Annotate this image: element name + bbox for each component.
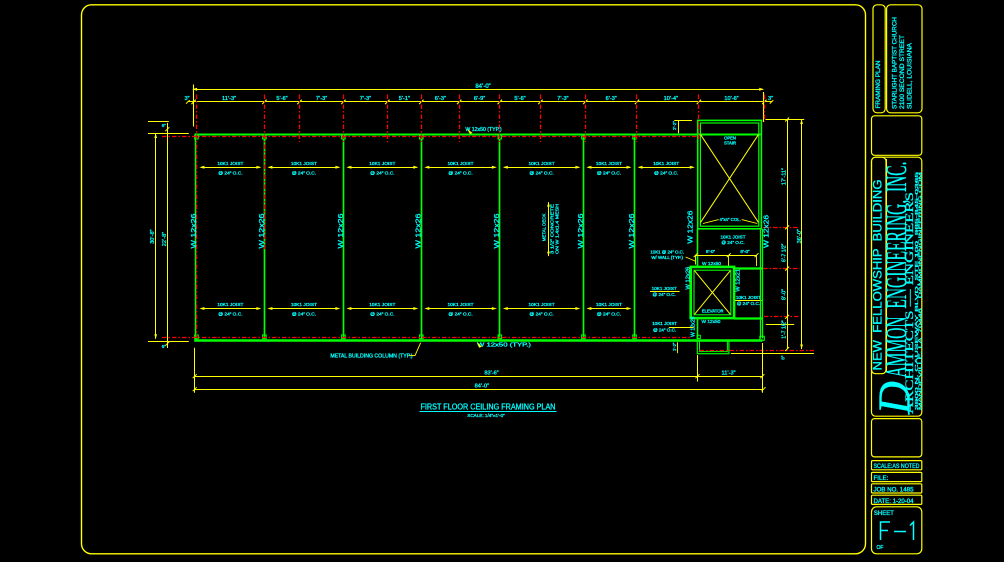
svg-text:8’-0”: 8’-0” bbox=[740, 249, 750, 254]
svg-text:3”: 3” bbox=[768, 96, 773, 102]
svg-text:7’-3”: 7’-3” bbox=[316, 96, 327, 102]
svg-text:W 12x26: W 12x26 bbox=[336, 214, 345, 249]
svg-text:OF: OF bbox=[877, 545, 884, 551]
svg-text:ON W 1.4x1.4 MESH: ON W 1.4x1.4 MESH bbox=[554, 204, 559, 254]
svg-text:W 12x50: W 12x50 bbox=[702, 319, 721, 325]
svg-text:METAL BUILDING COLUMN (TYP.): METAL BUILDING COLUMN (TYP.) bbox=[330, 354, 413, 360]
svg-text:ELEVATOR: ELEVATOR bbox=[702, 308, 724, 313]
svg-text:W 12x50 (TYP.): W 12x50 (TYP.) bbox=[477, 343, 531, 349]
svg-text:84’-0”: 84’-0” bbox=[475, 384, 489, 390]
svg-text:10K1 JOIST: 10K1 JOIST bbox=[217, 161, 243, 167]
svg-text:W 12x26: W 12x26 bbox=[576, 214, 585, 249]
svg-text:8’-0”: 8’-0” bbox=[781, 289, 787, 300]
svg-text:10’-4”: 10’-4” bbox=[664, 96, 678, 102]
svg-text:W 12x26: W 12x26 bbox=[685, 267, 691, 290]
svg-text:@ 24” O.C.: @ 24” O.C. bbox=[292, 312, 316, 318]
svg-text:10’-6”: 10’-6” bbox=[724, 96, 738, 102]
svg-text:@ 24” O.C.: @ 24” O.C. bbox=[653, 328, 676, 333]
svg-text:@ 24” O.C.: @ 24” O.C. bbox=[218, 170, 242, 176]
svg-text:10K1 @ 24” O.C.: 10K1 @ 24” O.C. bbox=[650, 250, 684, 255]
svg-text:W 12x26: W 12x26 bbox=[414, 214, 423, 249]
svg-text:10K1 JOIST: 10K1 JOIST bbox=[596, 302, 622, 308]
svg-text:36’-0”: 36’-0” bbox=[797, 229, 803, 243]
svg-text:@ 24” O.C.: @ 24” O.C. bbox=[529, 312, 553, 318]
svg-text:84’-0”: 84’-0” bbox=[475, 84, 490, 90]
svg-text:10K1 JOIST: 10K1 JOIST bbox=[369, 302, 395, 308]
svg-text:2100 SECOND STREET: 2100 SECOND STREET bbox=[899, 35, 906, 109]
svg-text:30’-8”: 30’-8” bbox=[150, 229, 156, 243]
svg-text:W 12x26: W 12x26 bbox=[691, 316, 697, 337]
svg-text:17’-11”: 17’-11” bbox=[781, 168, 787, 185]
svg-text:@ 24” O.C.: @ 24” O.C. bbox=[370, 312, 394, 318]
svg-text:FILE:: FILE: bbox=[874, 475, 889, 482]
svg-text:W 12x26: W 12x26 bbox=[686, 211, 695, 244]
svg-text:W 12x26: W 12x26 bbox=[762, 215, 771, 248]
svg-text:SCALE: 1/4”=1’-0”: SCALE: 1/4”=1’-0” bbox=[467, 413, 505, 418]
svg-text:5’-6”: 5’-6” bbox=[514, 96, 525, 102]
svg-text:STAIR: STAIR bbox=[724, 140, 736, 145]
svg-text:8’-0”: 8’-0” bbox=[706, 249, 716, 254]
svg-text:W 12x21: W 12x21 bbox=[736, 269, 742, 292]
svg-text:@ 24” O.C.: @ 24” O.C. bbox=[597, 170, 621, 176]
svg-text:11’-3”: 11’-3” bbox=[222, 96, 236, 102]
svg-text:10K1 JOIST: 10K1 JOIST bbox=[291, 302, 317, 308]
svg-text:@ 24” O.C.: @ 24” O.C. bbox=[448, 170, 472, 176]
svg-text:5’-1”: 5’-1” bbox=[399, 96, 410, 102]
svg-text:6”: 6” bbox=[162, 344, 167, 349]
svg-text:10K1 JOIST: 10K1 JOIST bbox=[596, 161, 622, 167]
svg-text:@ 24” O.C.: @ 24” O.C. bbox=[654, 170, 678, 176]
svg-text:@ 24” O.C.: @ 24” O.C. bbox=[448, 312, 472, 318]
svg-text:6”: 6” bbox=[162, 123, 167, 128]
svg-text:METAL DECK: METAL DECK bbox=[542, 214, 547, 242]
svg-text:FIRST FLOOR CEILING FRAMING PL: FIRST FLOOR CEILING FRAMING PLAN bbox=[421, 403, 556, 412]
svg-text:6’-9”: 6’-9” bbox=[474, 96, 485, 102]
svg-text:10K1 JOIST: 10K1 JOIST bbox=[736, 295, 761, 300]
svg-text:7’-3”: 7’-3” bbox=[360, 96, 371, 102]
svg-text:10K1 JOIST: 10K1 JOIST bbox=[529, 302, 555, 308]
svg-text:FRAMING PLAN: FRAMING PLAN bbox=[875, 60, 882, 108]
svg-text:10K1 JOIST: 10K1 JOIST bbox=[529, 161, 555, 167]
svg-text:DATE: 1-20-04: DATE: 1-20-04 bbox=[874, 498, 915, 505]
svg-text:@ 24” O.C.: @ 24” O.C. bbox=[529, 170, 553, 176]
svg-text:MANDEVILLE, LA 70448 DAMMO: MANDEVILLE, LA 70448 DAMMONENGINEERING.C… bbox=[917, 171, 922, 410]
svg-text:@ 24” O.C.: @ 24” O.C. bbox=[721, 240, 744, 245]
svg-text:10K1 JOIST: 10K1 JOIST bbox=[447, 302, 473, 308]
svg-text:2’-2”: 2’-2” bbox=[672, 121, 677, 130]
svg-text:6’-3”: 6’-3” bbox=[606, 96, 617, 102]
svg-text:@ 24” O.C.: @ 24” O.C. bbox=[737, 301, 760, 306]
svg-text:10K1 JOIST: 10K1 JOIST bbox=[369, 161, 395, 167]
svg-text:JOB NO. 1485: JOB NO. 1485 bbox=[874, 486, 915, 493]
svg-text:10K1 JOIST: 10K1 JOIST bbox=[653, 161, 679, 167]
svg-text:10K1 JOIST: 10K1 JOIST bbox=[217, 302, 243, 308]
svg-text:1’-2”: 1’-2” bbox=[672, 342, 677, 351]
svg-text:@ 24” O.C.: @ 24” O.C. bbox=[370, 170, 394, 176]
svg-text:10K1 JOIST: 10K1 JOIST bbox=[291, 161, 317, 167]
svg-text:10K1 JOIST: 10K1 JOIST bbox=[447, 161, 473, 167]
svg-text:10K1 JOIST: 10K1 JOIST bbox=[652, 286, 677, 291]
svg-text:W 12x26: W 12x26 bbox=[492, 214, 501, 249]
svg-text:5’-6”: 5’-6” bbox=[276, 96, 287, 102]
svg-text:W 12x26: W 12x26 bbox=[627, 214, 636, 249]
svg-text:3”: 3” bbox=[185, 96, 190, 102]
svg-text:1’-7 1/2”: 1’-7 1/2” bbox=[781, 320, 787, 339]
svg-text:10K1 JOIST: 10K1 JOIST bbox=[652, 321, 677, 326]
svg-text:6’-3”: 6’-3” bbox=[435, 96, 446, 102]
svg-text:@ 24” O.C.: @ 24” O.C. bbox=[218, 312, 242, 318]
svg-text:7’-3”: 7’-3” bbox=[557, 96, 568, 102]
svg-text:@ 24” O.C.: @ 24” O.C. bbox=[653, 292, 676, 297]
svg-text:W 12x26: W 12x26 bbox=[257, 214, 266, 249]
svg-text:6’-7 1/2”: 6’-7 1/2” bbox=[781, 243, 787, 262]
svg-text:@ 24” O.C.: @ 24” O.C. bbox=[292, 170, 316, 176]
svg-text:83’-6”: 83’-6” bbox=[484, 371, 498, 377]
svg-text:22’-8”: 22’-8” bbox=[162, 232, 168, 246]
svg-text:W 12x26: W 12x26 bbox=[189, 214, 198, 249]
svg-text:SHEET: SHEET bbox=[874, 511, 894, 517]
svg-text:@ 24” O.C.: @ 24” O.C. bbox=[597, 312, 621, 318]
svg-text:11’-3”: 11’-3” bbox=[722, 371, 736, 377]
svg-text:SCALE:AS NOTED: SCALE:AS NOTED bbox=[874, 463, 920, 470]
svg-text:SLIDELL, LOUISIANA: SLIDELL, LOUISIANA bbox=[906, 42, 913, 109]
svg-text:4”x4” COL.: 4”x4” COL. bbox=[719, 217, 740, 222]
svg-text:W/ WALL (TYP.): W/ WALL (TYP.) bbox=[651, 255, 683, 260]
svg-text:6”: 6” bbox=[780, 355, 785, 360]
svg-text:STARLIGHT BAPTIST CHURCH: STARLIGHT BAPTIST CHURCH bbox=[892, 17, 899, 109]
